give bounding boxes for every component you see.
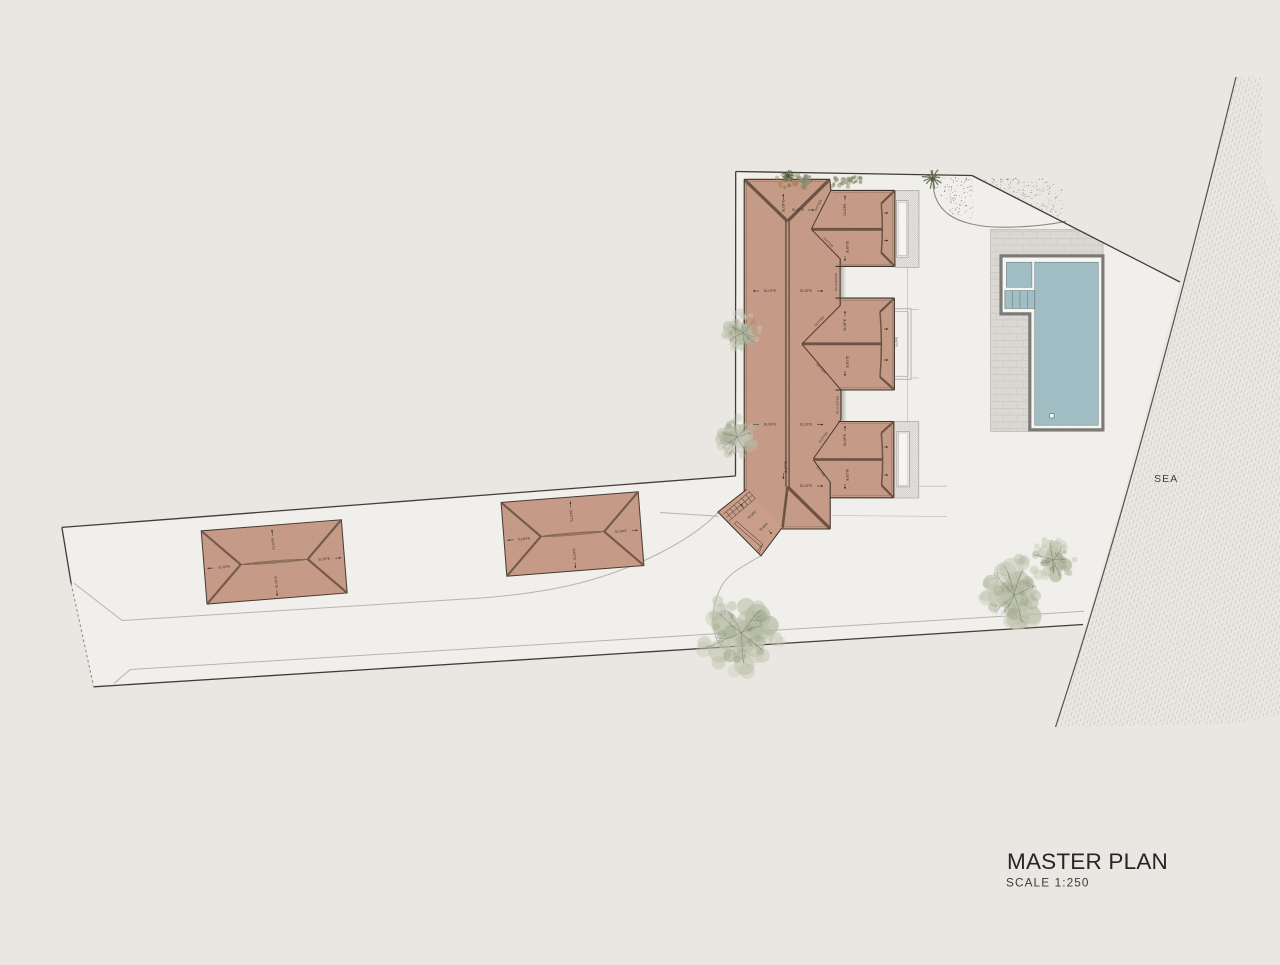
svg-text:SLOPE: SLOPE <box>800 423 813 427</box>
svg-text:SLOPE: SLOPE <box>784 461 788 474</box>
svg-text:SLOPE: SLOPE <box>843 433 847 446</box>
svg-text:SLOPE: SLOPE <box>895 337 899 347</box>
svg-text:SCALE 1:250: SCALE 1:250 <box>1006 876 1090 890</box>
svg-text:SLOPE: SLOPE <box>843 318 847 331</box>
svg-text:SEA: SEA <box>1154 473 1178 485</box>
svg-text:SLOPE: SLOPE <box>845 241 849 254</box>
svg-text:SLOPE: SLOPE <box>843 203 847 216</box>
svg-text:SLOPE: SLOPE <box>792 208 805 212</box>
svg-text:SLOPE: SLOPE <box>764 423 777 427</box>
svg-text:SLOPE: SLOPE <box>800 289 813 293</box>
svg-text:SLOPE: SLOPE <box>764 289 777 293</box>
svg-text:RC GUTTER: RC GUTTER <box>834 272 838 291</box>
svg-text:RC GUTTER: RC GUTTER <box>836 395 840 414</box>
svg-text:SLOPE: SLOPE <box>782 199 786 212</box>
svg-text:MASTER PLAN: MASTER PLAN <box>1007 849 1168 874</box>
svg-text:SLOPE: SLOPE <box>845 356 849 369</box>
svg-text:SLOPE: SLOPE <box>800 484 813 488</box>
svg-text:SLOPE: SLOPE <box>845 469 849 482</box>
